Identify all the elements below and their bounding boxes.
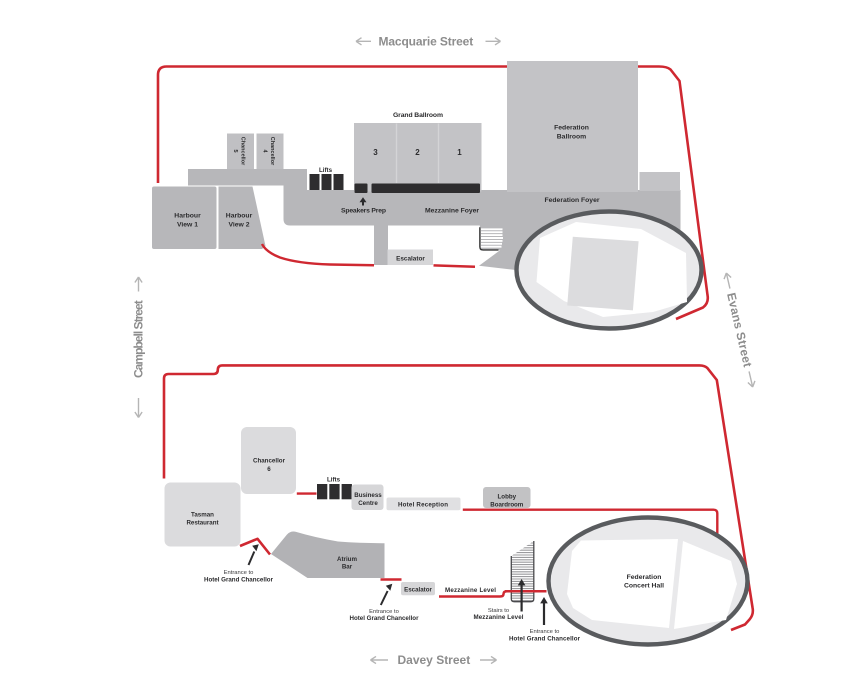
svg-text:Lobby: Lobby <box>498 494 517 501</box>
svg-text:Mezzanine Foyer: Mezzanine Foyer <box>425 208 479 215</box>
svg-text:Hotel Grand Chancellor: Hotel Grand Chancellor <box>204 577 274 584</box>
svg-text:Speakers Prep: Speakers Prep <box>341 208 386 215</box>
svg-text:Lifts: Lifts <box>319 167 333 174</box>
svg-text:6: 6 <box>267 466 271 473</box>
svg-text:Harbour: Harbour <box>174 213 201 220</box>
svg-text:Lifts: Lifts <box>327 477 341 484</box>
svg-text:Tasman: Tasman <box>191 512 214 519</box>
svg-text:Entrance to: Entrance to <box>224 570 254 576</box>
svg-text:Concert Hall: Concert Hall <box>624 583 664 590</box>
svg-text:Evans Street: Evans Street <box>724 291 755 368</box>
svg-text:Grand Ballroom: Grand Ballroom <box>393 112 443 119</box>
svg-text:Campbell Street: Campbell Street <box>132 300 146 378</box>
svg-text:Business: Business <box>354 492 382 499</box>
svg-text:5: 5 <box>232 149 238 152</box>
svg-text:Centre: Centre <box>358 500 378 507</box>
svg-text:View 2: View 2 <box>228 221 249 228</box>
svg-text:Escalator: Escalator <box>404 586 432 593</box>
svg-text:Mezzanine Level: Mezzanine Level <box>474 614 524 621</box>
svg-text:Federation Foyer: Federation Foyer <box>545 197 600 204</box>
svg-text:Davey Street: Davey Street <box>398 653 471 667</box>
svg-text:Chancellor: Chancellor <box>253 458 286 465</box>
svg-text:Federation: Federation <box>627 574 662 581</box>
svg-text:Harbour: Harbour <box>226 213 253 220</box>
svg-text:Entrance to: Entrance to <box>530 629 560 635</box>
svg-text:3: 3 <box>373 148 378 157</box>
svg-text:Bar: Bar <box>342 564 353 571</box>
svg-text:View 1: View 1 <box>177 221 198 228</box>
svg-text:Ballroom: Ballroom <box>557 134 586 141</box>
svg-text:Mezzanine Level: Mezzanine Level <box>445 587 496 594</box>
svg-text:Hotel Reception: Hotel Reception <box>398 502 448 509</box>
svg-text:Chancellor: Chancellor <box>240 137 246 166</box>
svg-text:Hotel Grand Chancellor: Hotel Grand Chancellor <box>350 615 420 622</box>
svg-text:1: 1 <box>457 148 462 157</box>
svg-text:Boardroom: Boardroom <box>490 501 523 508</box>
svg-text:Chancellor: Chancellor <box>269 137 275 166</box>
svg-text:Atrium: Atrium <box>337 556 357 563</box>
svg-text:Macquarie Street: Macquarie Street <box>379 35 474 49</box>
svg-text:2: 2 <box>415 148 420 157</box>
svg-text:Escalator: Escalator <box>396 255 425 262</box>
svg-text:Restaurant: Restaurant <box>187 520 219 527</box>
svg-text:Hotel Grand Chancellor: Hotel Grand Chancellor <box>509 636 581 643</box>
svg-text:Federation: Federation <box>554 125 589 132</box>
